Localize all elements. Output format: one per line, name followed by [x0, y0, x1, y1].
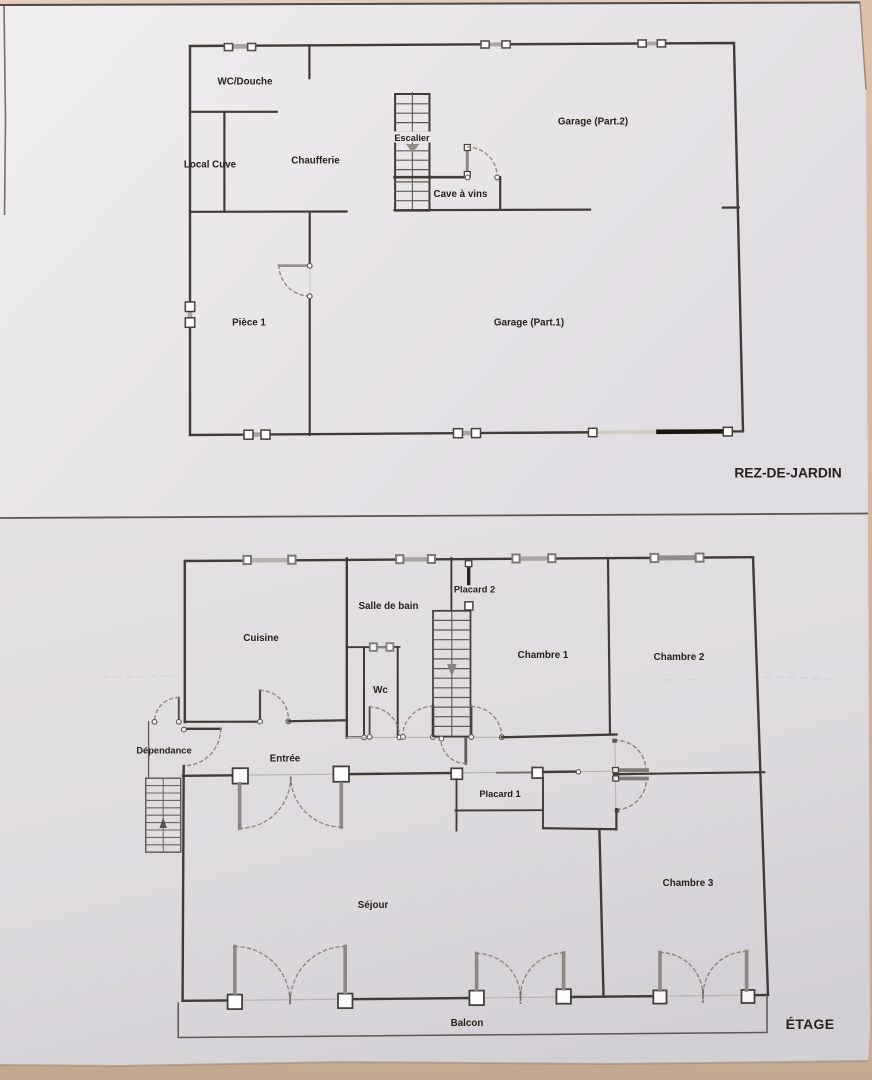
svg-text:Chaufferie: Chaufferie	[291, 156, 340, 167]
svg-text:Balcon: Balcon	[451, 1018, 484, 1029]
svg-text:Dépendance: Dépendance	[136, 746, 191, 756]
svg-text:Chambre 2: Chambre 2	[654, 652, 705, 663]
svg-text:Entrée: Entrée	[270, 754, 301, 765]
svg-text:Cave à vins: Cave à vins	[434, 189, 488, 200]
svg-text:Escalier: Escalier	[394, 133, 430, 143]
svg-text:Garage (Part.2): Garage (Part.2)	[558, 117, 628, 128]
svg-text:Local Cuve: Local Cuve	[184, 160, 237, 171]
svg-text:WC/Douche: WC/Douche	[218, 77, 274, 88]
svg-text:REZ-DE-JARDIN: REZ-DE-JARDIN	[734, 466, 841, 481]
svg-text:Wc: Wc	[373, 685, 388, 696]
svg-text:Séjour: Séjour	[358, 900, 389, 911]
svg-text:Placard 2: Placard 2	[454, 585, 495, 595]
svg-text:ÉTAGE: ÉTAGE	[786, 1016, 835, 1032]
svg-text:Pièce 1: Pièce 1	[232, 318, 266, 329]
svg-text:Chambre 3: Chambre 3	[663, 878, 714, 889]
svg-text:Salle de bain: Salle de bain	[359, 601, 419, 612]
svg-text:Chambre 1: Chambre 1	[518, 650, 569, 661]
svg-text:Garage (Part.1): Garage (Part.1)	[494, 318, 564, 329]
svg-text:Placard 1: Placard 1	[479, 789, 520, 799]
svg-text:Cuisine: Cuisine	[243, 633, 279, 644]
